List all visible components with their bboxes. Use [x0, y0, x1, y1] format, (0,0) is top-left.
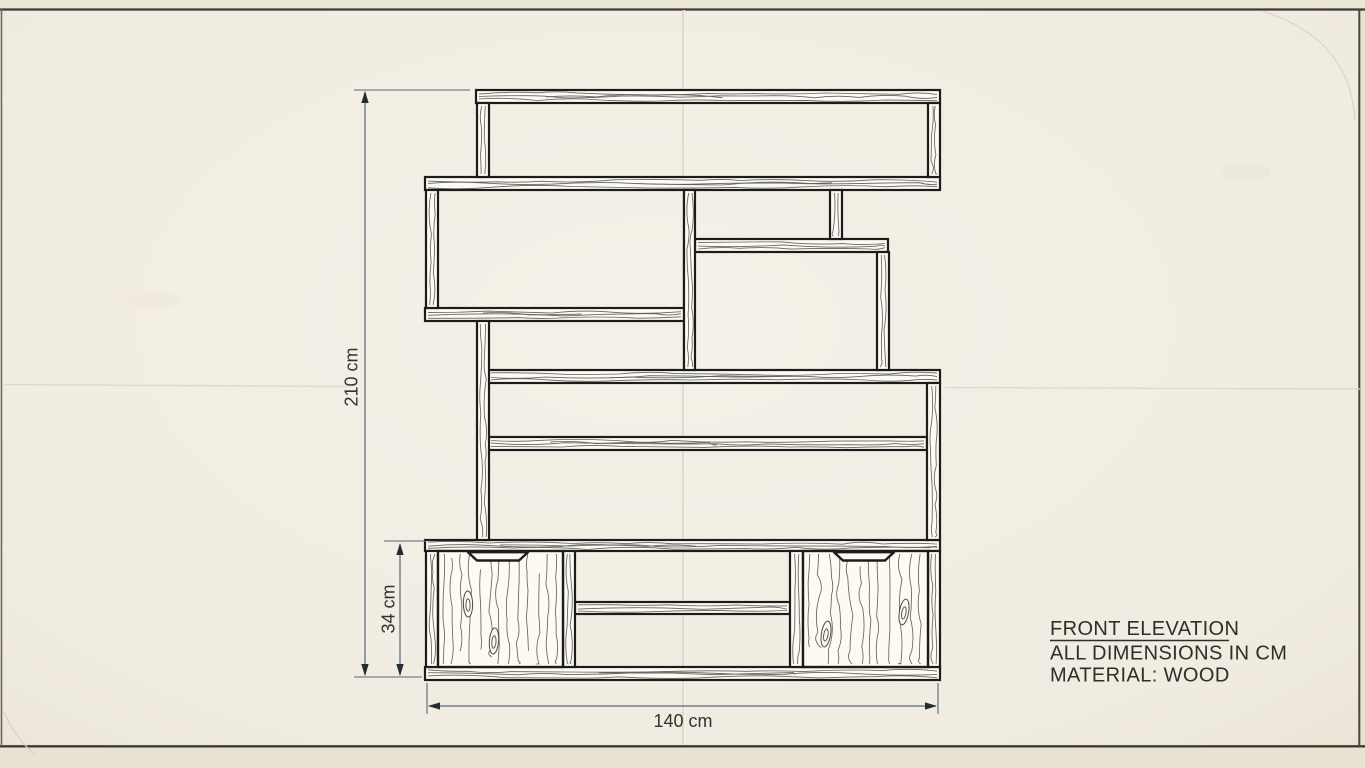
cabinet-height-label: 34 cm [378, 584, 398, 633]
door-handle-notch [834, 552, 894, 560]
paper-top-margin [0, 0, 1365, 9]
note-units: ALL DIMENSIONS IN CM [1050, 643, 1287, 665]
cabinet-door-left [438, 551, 563, 667]
cabinet-side-right [928, 551, 940, 667]
upper-shelf-board [425, 177, 940, 190]
paper-stain [120, 291, 180, 309]
paper-bottom-margin [0, 748, 1365, 768]
post-small-shelf-right [877, 252, 889, 370]
overall-width-label: 140 cm [653, 711, 712, 731]
door-handle-notch [468, 552, 528, 560]
top-shelf-board [476, 90, 940, 103]
post-small-shelf-left [830, 190, 842, 239]
post-top-right [928, 103, 940, 177]
post-lower-left [477, 321, 489, 540]
right-small-shelf-board [695, 239, 888, 252]
wood-knot [463, 591, 473, 617]
long-mid-shelf-board [488, 370, 940, 383]
cabinet-bottom-board [425, 667, 940, 680]
cabinet-top-board [425, 540, 940, 551]
lower-shelf-board [488, 437, 927, 450]
cabinet-divider-left [563, 551, 575, 667]
overall-height-label: 210 cm [341, 347, 361, 406]
drawing-title: FRONT ELEVATION [1050, 618, 1239, 640]
post-lower-right [927, 383, 940, 540]
post-middle [684, 190, 695, 370]
compartment-shelf-board [575, 602, 790, 614]
elevation-drawing-svg: 210 cm 34 cm 140 cm FRONT ELEVATION ALL … [0, 0, 1365, 768]
cabinet-side-left [426, 551, 438, 667]
paper-right-margin [1360, 8, 1365, 748]
paper-stain [1219, 162, 1271, 182]
cabinet-divider-right [790, 551, 803, 667]
note-material: MATERIAL: WOOD [1050, 665, 1230, 687]
cabinet-door-right [803, 551, 928, 667]
post-top-left [477, 103, 489, 177]
post-upper-left [426, 190, 438, 308]
left-mid-shelf-board [425, 308, 684, 321]
scanned-drawing-page: 210 cm 34 cm 140 cm FRONT ELEVATION ALL … [0, 0, 1365, 768]
